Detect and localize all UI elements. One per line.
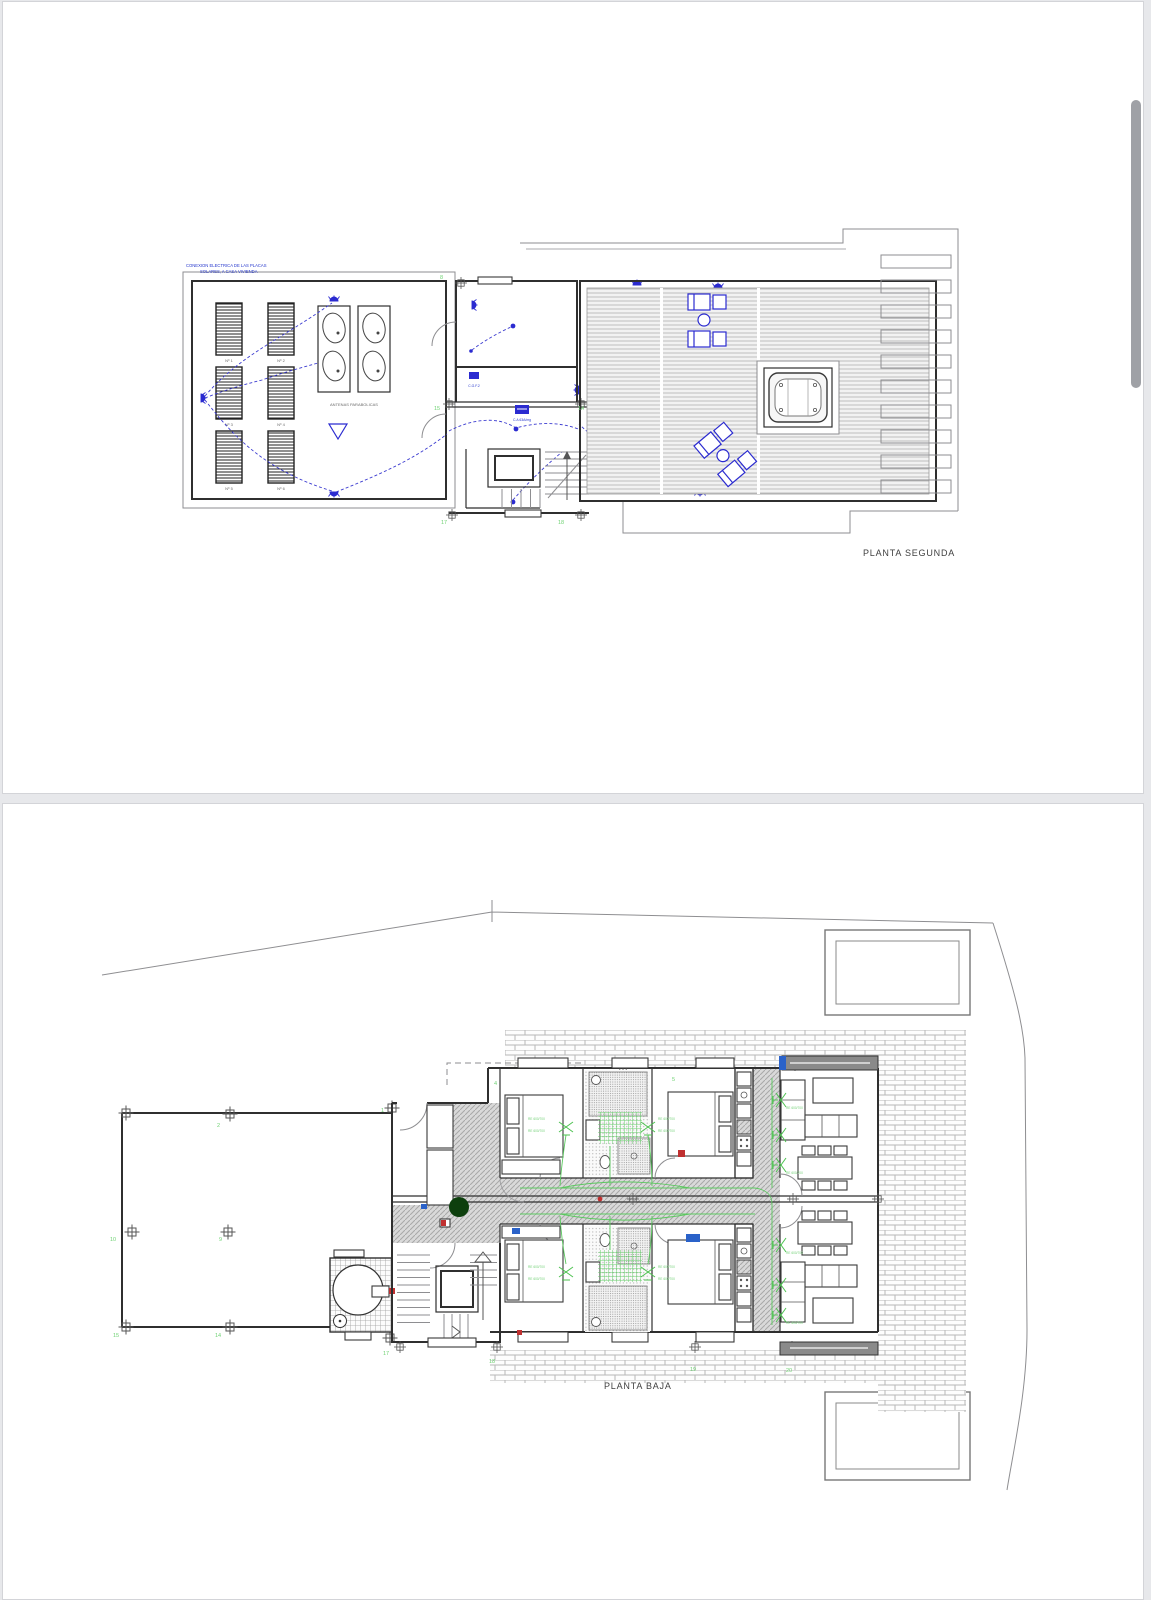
svg-text:CONEXION ELECTRICA DE LAS PLAC: CONEXION ELECTRICA DE LAS PLACAS	[186, 263, 267, 268]
kitchen-lower	[735, 1224, 753, 1332]
panel-label: Nº 1	[225, 358, 233, 363]
svg-text:17: 17	[383, 1351, 389, 1357]
svg-text:RE 600/700: RE 600/700	[658, 1277, 675, 1281]
svg-text:RE 600/700: RE 600/700	[528, 1265, 545, 1269]
scrollbar-thumb[interactable]	[1131, 100, 1141, 388]
plan-title: PLANTA SEGUNDA	[863, 548, 955, 558]
panel-label: Nº 5	[225, 486, 233, 491]
svg-text:20: 20	[786, 1368, 792, 1374]
svg-text:RE 600/700: RE 600/700	[786, 1106, 803, 1110]
bedroom-lower-right	[668, 1234, 733, 1304]
svg-text:9: 9	[219, 1237, 222, 1243]
acometida-box: C.A 63A/mg	[513, 405, 531, 422]
svg-text:RE 600/700: RE 600/700	[786, 1321, 803, 1325]
stair-block	[392, 1243, 522, 1353]
living-lower	[781, 1211, 857, 1323]
svg-text:RE 600/700: RE 600/700	[658, 1129, 675, 1133]
panel-label: Nº 6	[277, 486, 285, 491]
plan-baja-drawing: RE 600/700 RE 600/700 RE 600/700 RE 600/…	[3, 804, 1143, 1599]
svg-text:2: 2	[217, 1123, 220, 1129]
solar-panel-array: Nº 1 Nº 2 Nº 3 Nº 4 Nº 5 Nº 6	[216, 303, 294, 491]
svg-text:RE 600/700: RE 600/700	[528, 1129, 545, 1133]
svg-text:C.G.F.2: C.G.F.2	[468, 384, 480, 388]
cgf-box: C.G.F.2	[468, 372, 480, 388]
svg-text:19: 19	[690, 1367, 696, 1373]
svg-text:RE 600/700: RE 600/700	[528, 1117, 545, 1121]
document-viewer: Nº 1 Nº 2 Nº 3 Nº 4 Nº 5 Nº 6 ANTENAS PA…	[0, 0, 1151, 1600]
page-planta-baja: RE 600/700 RE 600/700 RE 600/700 RE 600/…	[2, 803, 1144, 1600]
blue-accent-top	[779, 1056, 786, 1070]
svg-text:14: 14	[215, 1333, 221, 1339]
antennas-label: ANTENAS PARABOLICAS	[330, 402, 378, 407]
svg-text:RE 600/700: RE 600/700	[658, 1117, 675, 1121]
antenna-triangle-symbol	[329, 424, 347, 439]
svg-text:C.A 63A/mg: C.A 63A/mg	[513, 418, 531, 422]
svg-text:RE 600/700: RE 600/700	[528, 1277, 545, 1281]
panel-label: Nº 2	[277, 358, 285, 363]
svg-text:RE 600/700: RE 600/700	[786, 1251, 803, 1255]
svg-text:10: 10	[110, 1237, 116, 1243]
svg-text:RE 600/700: RE 600/700	[658, 1265, 675, 1269]
panel-label: Nº 4	[277, 422, 285, 427]
svg-text:15: 15	[113, 1333, 119, 1339]
bedroom-lower-left	[502, 1226, 563, 1302]
tank-room	[330, 1250, 395, 1340]
plan-title: PLANTA BAJA	[604, 1381, 672, 1391]
tree	[449, 1197, 469, 1217]
jacuzzi	[757, 361, 839, 434]
svg-text:14: 14	[578, 406, 584, 412]
center-joint-marker	[598, 1197, 603, 1202]
svg-text:4: 4	[494, 1081, 497, 1087]
svg-text:15: 15	[434, 406, 440, 412]
svg-text:17: 17	[441, 520, 447, 526]
pool-top	[825, 930, 970, 1015]
bedroom-upper-right	[668, 1092, 733, 1157]
svg-text:8: 8	[440, 275, 443, 281]
svg-text:18: 18	[558, 520, 564, 526]
svg-text:RE 600/700: RE 600/700	[786, 1171, 803, 1175]
svg-text:1: 1	[381, 1108, 384, 1114]
svg-text:18: 18	[489, 1359, 495, 1365]
svg-text:SOLARES, A CASA VIVIENDA: SOLARES, A CASA VIVIENDA	[200, 269, 258, 274]
bedroom-upper-left	[502, 1095, 563, 1174]
stair-core: C.G.F.2 C.A 63A/mg	[422, 277, 613, 521]
plan-segunda-drawing: Nº 1 Nº 2 Nº 3 Nº 4 Nº 5 Nº 6 ANTENAS PA…	[3, 2, 1143, 793]
page-planta-segunda: Nº 1 Nº 2 Nº 3 Nº 4 Nº 5 Nº 6 ANTENAS PA…	[2, 1, 1144, 794]
kitchen-upper	[735, 1068, 753, 1178]
parabolic-antennas: ANTENAS PARABOLICAS	[318, 306, 390, 439]
svg-text:5: 5	[672, 1077, 675, 1083]
